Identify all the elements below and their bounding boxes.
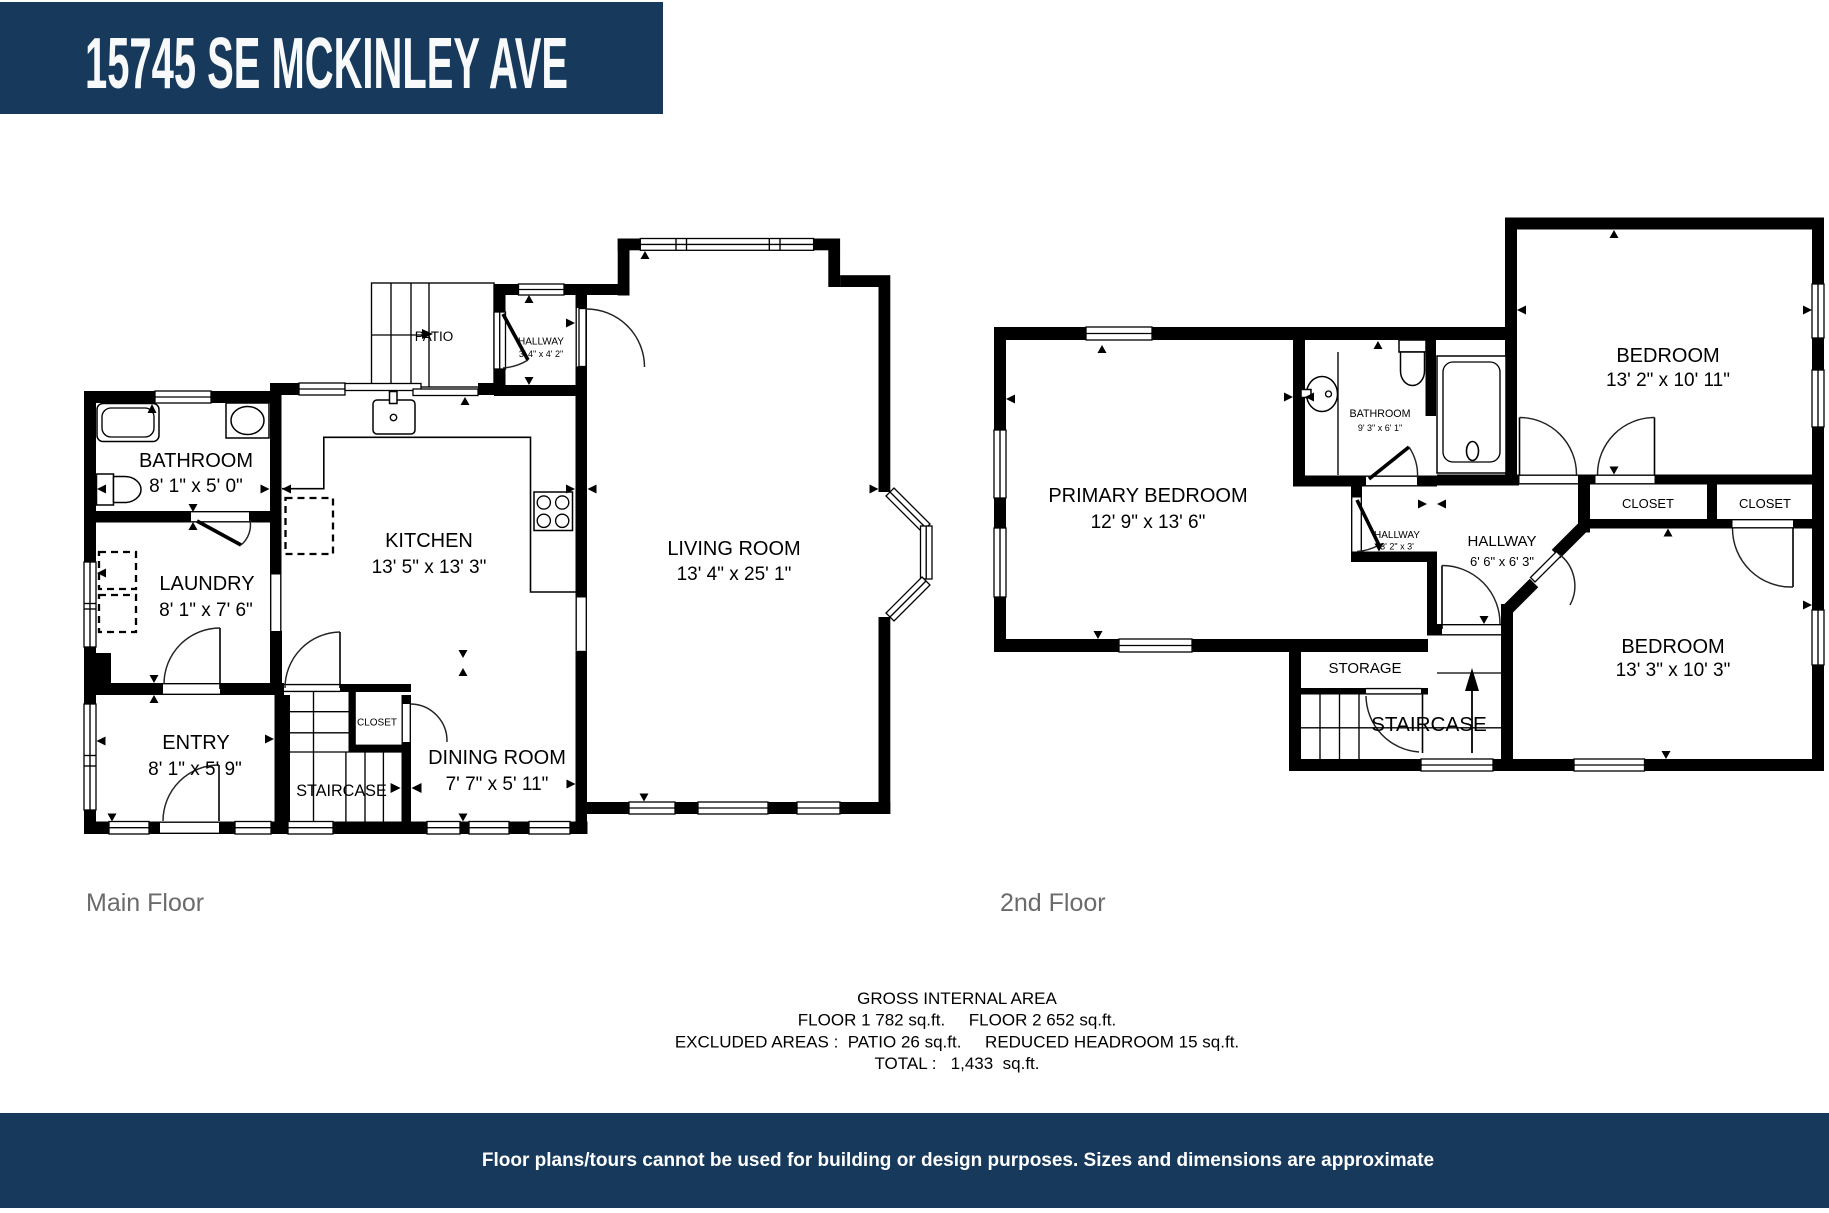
svg-text:8' 1" x 7' 6": 8' 1" x 7' 6" <box>159 600 253 621</box>
svg-text:EXCLUDED AREAS : PATIO 26 sq.: EXCLUDED AREAS : PATIO 26 sq.ft. REDUCED… <box>675 1033 1239 1052</box>
svg-text:STAIRCASE: STAIRCASE <box>296 782 387 800</box>
svg-text:3' 2" x 3': 3' 2" x 3' <box>1380 542 1414 552</box>
svg-text:8' 1" x 5' 9": 8' 1" x 5' 9" <box>148 759 242 780</box>
svg-text:LIVING ROOM: LIVING ROOM <box>667 538 800 560</box>
svg-text:CLOSET: CLOSET <box>357 718 397 729</box>
svg-text:7' 7" x 5' 11": 7' 7" x 5' 11" <box>446 774 549 795</box>
svg-text:6' 6" x 6' 3": 6' 6" x 6' 3" <box>1470 554 1534 569</box>
svg-text:STAIRCASE: STAIRCASE <box>1371 713 1487 736</box>
svg-text:BATHROOM: BATHROOM <box>1350 408 1411 420</box>
svg-text:GROSS INTERNAL AREA: GROSS INTERNAL AREA <box>857 989 1057 1008</box>
svg-text:DINING ROOM: DINING ROOM <box>428 747 566 769</box>
svg-text:CLOSET: CLOSET <box>1739 496 1791 511</box>
svg-text:HALLWAY: HALLWAY <box>518 337 564 348</box>
svg-text:Floor plans/tours cannot be us: Floor plans/tours cannot be used for bui… <box>482 1150 1434 1171</box>
svg-text:13' 3" x 10' 3": 13' 3" x 10' 3" <box>1616 660 1731 681</box>
svg-text:HALLWAY: HALLWAY <box>1468 533 1537 550</box>
svg-text:CLOSET: CLOSET <box>1622 496 1674 511</box>
svg-text:TOTAL : 1,433 sq.ft.: TOTAL : 1,433 sq.ft. <box>874 1054 1039 1073</box>
svg-text:ENTRY: ENTRY <box>162 732 229 754</box>
svg-text:2nd Floor: 2nd Floor <box>1000 889 1106 917</box>
svg-text:15745 SE MCKINLEY AVE: 15745 SE MCKINLEY AVE <box>85 24 568 104</box>
svg-text:3' 4" x 4' 2": 3' 4" x 4' 2" <box>519 349 563 359</box>
svg-text:13' 4" x 25' 1": 13' 4" x 25' 1" <box>677 564 792 585</box>
svg-text:BATHROOM: BATHROOM <box>139 450 253 472</box>
svg-text:12' 9" x 13' 6": 12' 9" x 13' 6" <box>1091 512 1206 533</box>
svg-text:KITCHEN: KITCHEN <box>385 530 473 552</box>
svg-text:13' 2" x 10' 11": 13' 2" x 10' 11" <box>1606 370 1730 391</box>
svg-text:9' 3" x 6' 1": 9' 3" x 6' 1" <box>1358 423 1402 433</box>
svg-text:BEDROOM: BEDROOM <box>1616 345 1719 367</box>
svg-text:HALLWAY: HALLWAY <box>1374 530 1420 541</box>
svg-text:LAUNDRY: LAUNDRY <box>159 573 254 595</box>
svg-text:PATIO: PATIO <box>415 329 454 344</box>
svg-text:PRIMARY BEDROOM: PRIMARY BEDROOM <box>1048 485 1247 507</box>
svg-text:STORAGE: STORAGE <box>1328 660 1401 677</box>
svg-text:FLOOR 1 782 sq.ft. FLOOR 2: FLOOR 1 782 sq.ft. FLOOR 2 652 sq.ft. <box>798 1011 1116 1030</box>
svg-text:BEDROOM: BEDROOM <box>1621 636 1724 658</box>
svg-text:Main Floor: Main Floor <box>86 889 204 917</box>
svg-text:8' 1" x 5' 0": 8' 1" x 5' 0" <box>149 476 243 497</box>
svg-text:13' 5" x 13' 3": 13' 5" x 13' 3" <box>372 557 487 578</box>
